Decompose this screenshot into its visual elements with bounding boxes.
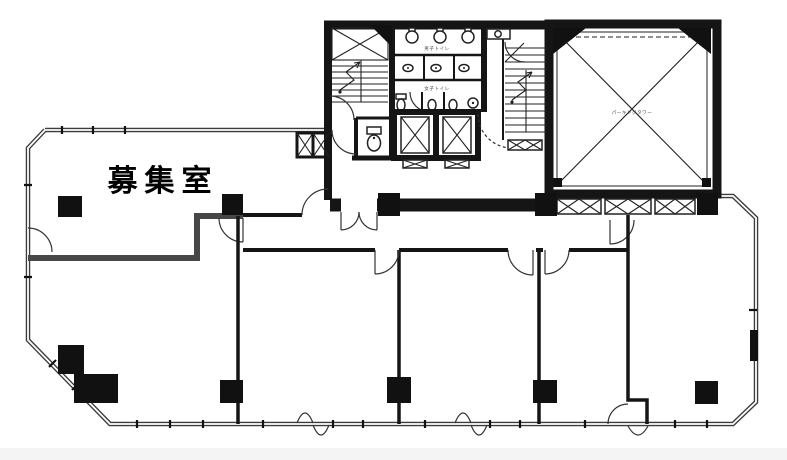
elevator-bank bbox=[394, 112, 512, 168]
womens-toilet: 女子トイレ bbox=[396, 85, 478, 112]
door-arc bbox=[28, 228, 52, 252]
door-arc bbox=[508, 250, 533, 275]
pillar bbox=[222, 194, 243, 215]
pillar bbox=[387, 377, 411, 403]
urinal-icon bbox=[406, 31, 418, 43]
door-arc bbox=[545, 250, 569, 274]
staircase-left bbox=[330, 25, 392, 120]
image-bottom-margin bbox=[0, 448, 787, 460]
pillar bbox=[378, 193, 400, 216]
corner-l-pillar bbox=[58, 345, 118, 403]
door-arc bbox=[375, 250, 399, 274]
floor-plan-drawing: パーキングタワー 男子トイレ bbox=[0, 0, 787, 460]
pillars bbox=[58, 193, 718, 404]
toilet-icon bbox=[449, 100, 457, 111]
elevator-hall-door-arc bbox=[478, 114, 512, 148]
right-wall-thick-segment bbox=[750, 330, 758, 361]
shaft-x-box: パーキングタワー bbox=[549, 24, 717, 194]
womens-toilet-label: 女子トイレ bbox=[424, 85, 449, 92]
pillar bbox=[220, 380, 243, 403]
pillar bbox=[697, 193, 718, 215]
staircase-right bbox=[505, 42, 547, 150]
pillar bbox=[695, 381, 718, 404]
pillar bbox=[535, 193, 557, 216]
pillar bbox=[58, 196, 82, 217]
mens-toilet-label: 男子トイレ bbox=[424, 45, 449, 52]
floor-plan: パーキングタワー 男子トイレ bbox=[0, 0, 787, 460]
louver-vents bbox=[557, 199, 695, 214]
pillar bbox=[533, 380, 557, 403]
urinal-icon bbox=[462, 31, 474, 43]
toilet-icon bbox=[428, 100, 436, 111]
room-partitions bbox=[238, 215, 647, 424]
shaft-label: パーキングタワー bbox=[612, 109, 653, 116]
bottom-entrance-doors bbox=[297, 404, 648, 435]
main-room-label: 募集室 bbox=[107, 164, 219, 198]
urinal-icon bbox=[434, 31, 446, 43]
